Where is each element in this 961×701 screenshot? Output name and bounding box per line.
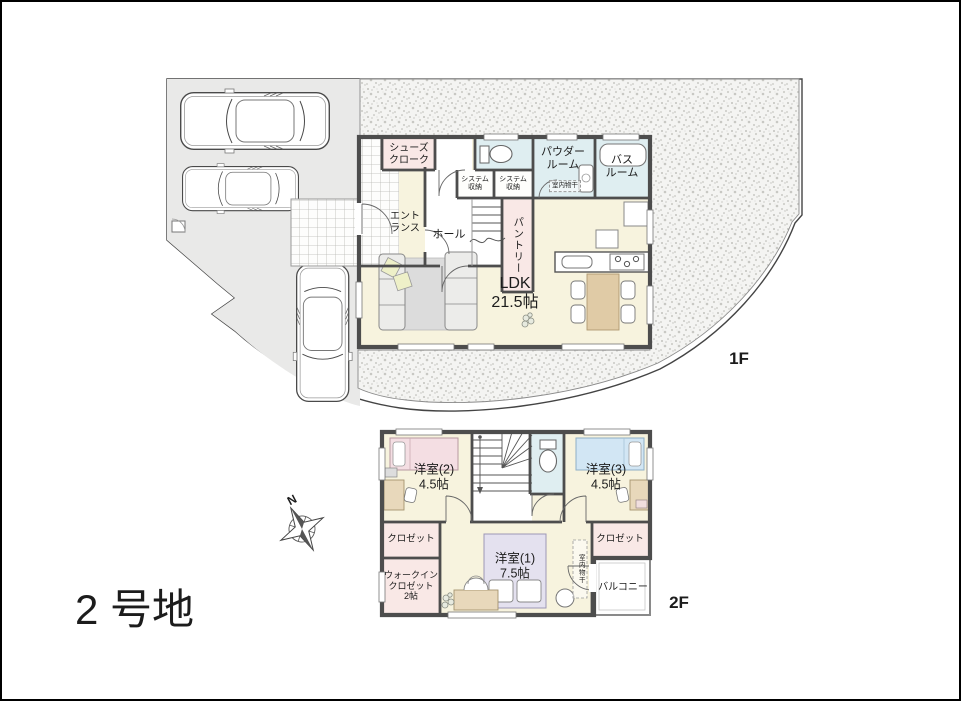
bed-icon (390, 438, 458, 470)
toilet-icon (480, 146, 512, 164)
toilet-icon (540, 440, 557, 472)
stove-icon (610, 254, 644, 270)
compass-icon (270, 497, 335, 562)
room-system-storage-left (457, 170, 494, 198)
balcony-door-opening (589, 564, 596, 592)
balcony (594, 558, 650, 615)
room-shoes-cloak (382, 139, 435, 170)
room-pantry (502, 199, 533, 292)
room-walk-in-closet (382, 558, 440, 615)
car-icon (181, 89, 330, 153)
stool-icon (556, 589, 574, 607)
bathtub-icon (600, 144, 646, 166)
car-icon (183, 164, 299, 214)
car-icon (293, 265, 352, 402)
gate-icon (172, 219, 185, 232)
approach-tiles (291, 199, 359, 266)
house-1f (355, 134, 653, 350)
bed-icon (576, 438, 644, 470)
room-closet-right (592, 522, 650, 558)
room-system-storage-right (494, 170, 533, 198)
site-plan-1f (167, 79, 802, 411)
sofa-icon (379, 252, 477, 330)
room-closet-left (382, 522, 440, 558)
floor-plan-2f (379, 429, 653, 618)
washbasin-icon (579, 165, 593, 192)
sink-icon (562, 256, 592, 268)
floorplan-page: シューズ クローク エント ランス ホール システム 収納 システム 収納 パウ… (0, 0, 961, 701)
floorplan-canvas (2, 2, 961, 701)
